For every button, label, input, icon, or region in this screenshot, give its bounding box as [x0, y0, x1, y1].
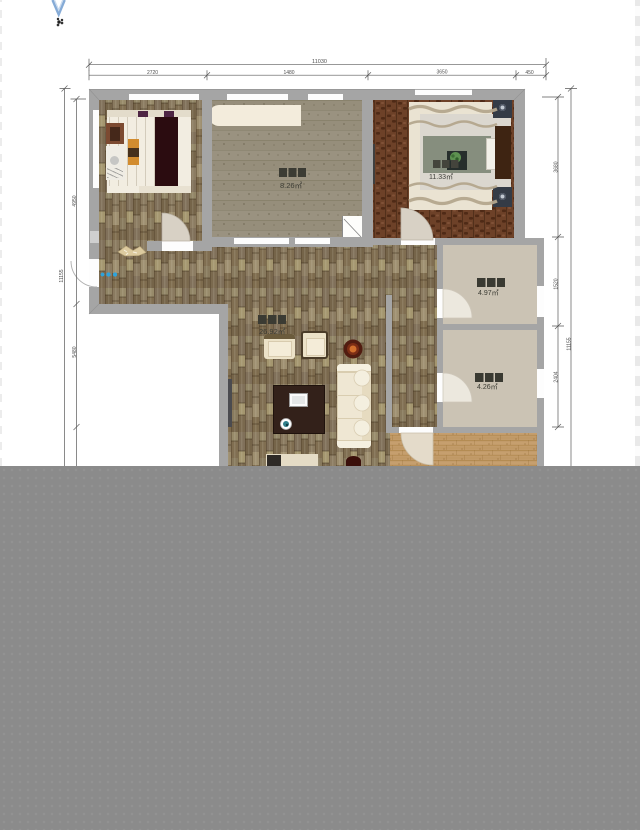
svg-text:11030: 11030 — [312, 59, 327, 65]
svg-text:3650: 3650 — [436, 70, 447, 76]
svg-text:2720: 2720 — [147, 70, 158, 76]
svg-text:2404: 2404 — [553, 371, 559, 382]
svg-text:3680: 3680 — [553, 161, 559, 172]
svg-text:11155: 11155 — [566, 337, 572, 350]
svg-text:450: 450 — [525, 70, 534, 76]
svg-text:4950: 4950 — [72, 195, 78, 206]
svg-text:5480: 5480 — [72, 346, 78, 357]
svg-text:1480: 1480 — [283, 70, 294, 76]
svg-text:11155: 11155 — [59, 269, 65, 282]
svg-text:1520: 1520 — [553, 278, 559, 289]
